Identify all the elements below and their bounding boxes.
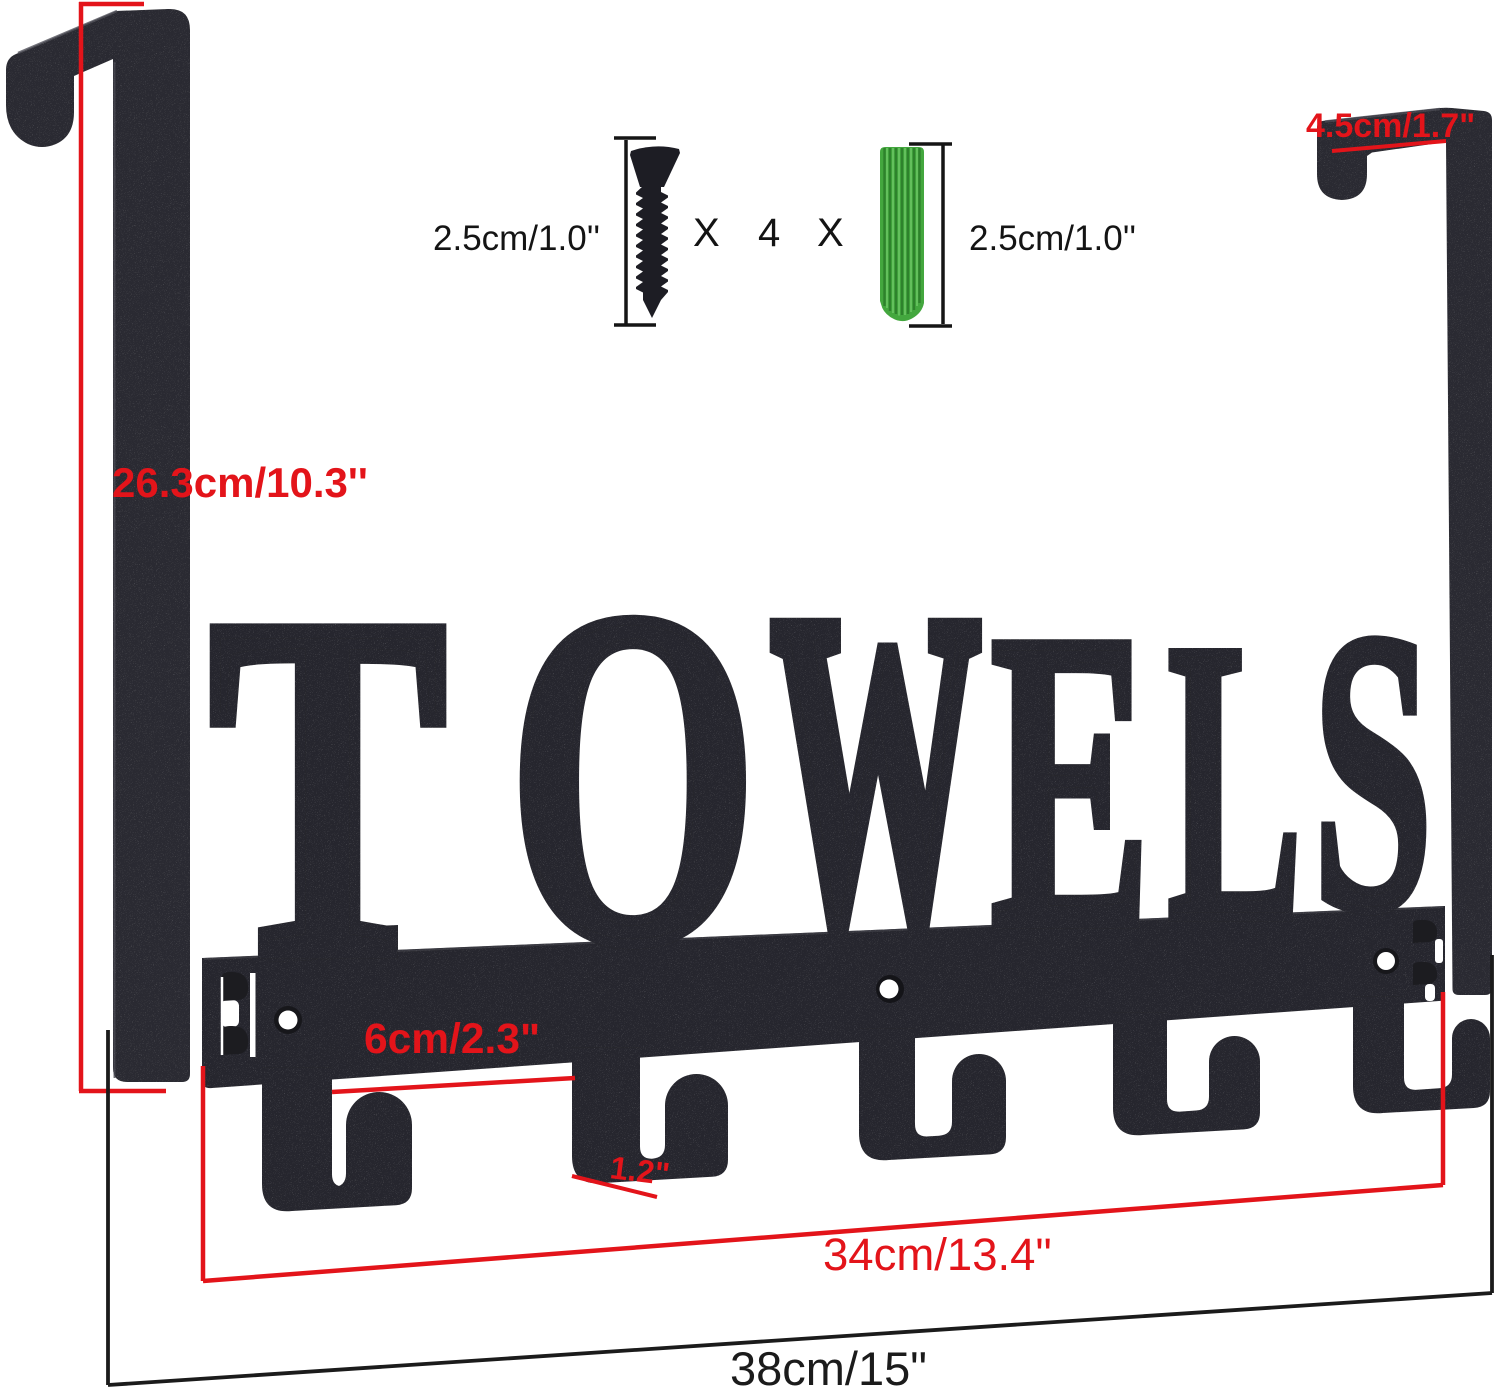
svg-text:4: 4	[758, 211, 780, 255]
svg-text:X: X	[693, 211, 720, 255]
svg-text:2.5cm/1.0'': 2.5cm/1.0''	[433, 219, 600, 258]
svg-text:4.5cm/1.7": 4.5cm/1.7"	[1306, 107, 1475, 145]
svg-text:T: T	[210, 515, 447, 1058]
svg-text:26.3cm/10.3'': 26.3cm/10.3''	[112, 459, 368, 506]
svg-text:2.5cm/1.0'': 2.5cm/1.0''	[969, 219, 1136, 258]
svg-text:6cm/2.3": 6cm/2.3"	[364, 1016, 540, 1063]
svg-text:X: X	[817, 211, 844, 255]
svg-text:W: W	[772, 525, 981, 1016]
svg-text:O: O	[508, 510, 759, 1044]
svg-text:E: E	[991, 544, 1151, 1016]
svg-text:38cm/15": 38cm/15"	[730, 1342, 927, 1394]
svg-text:L: L	[1167, 558, 1302, 1005]
svg-text:34cm/13.4": 34cm/13.4"	[823, 1229, 1052, 1280]
